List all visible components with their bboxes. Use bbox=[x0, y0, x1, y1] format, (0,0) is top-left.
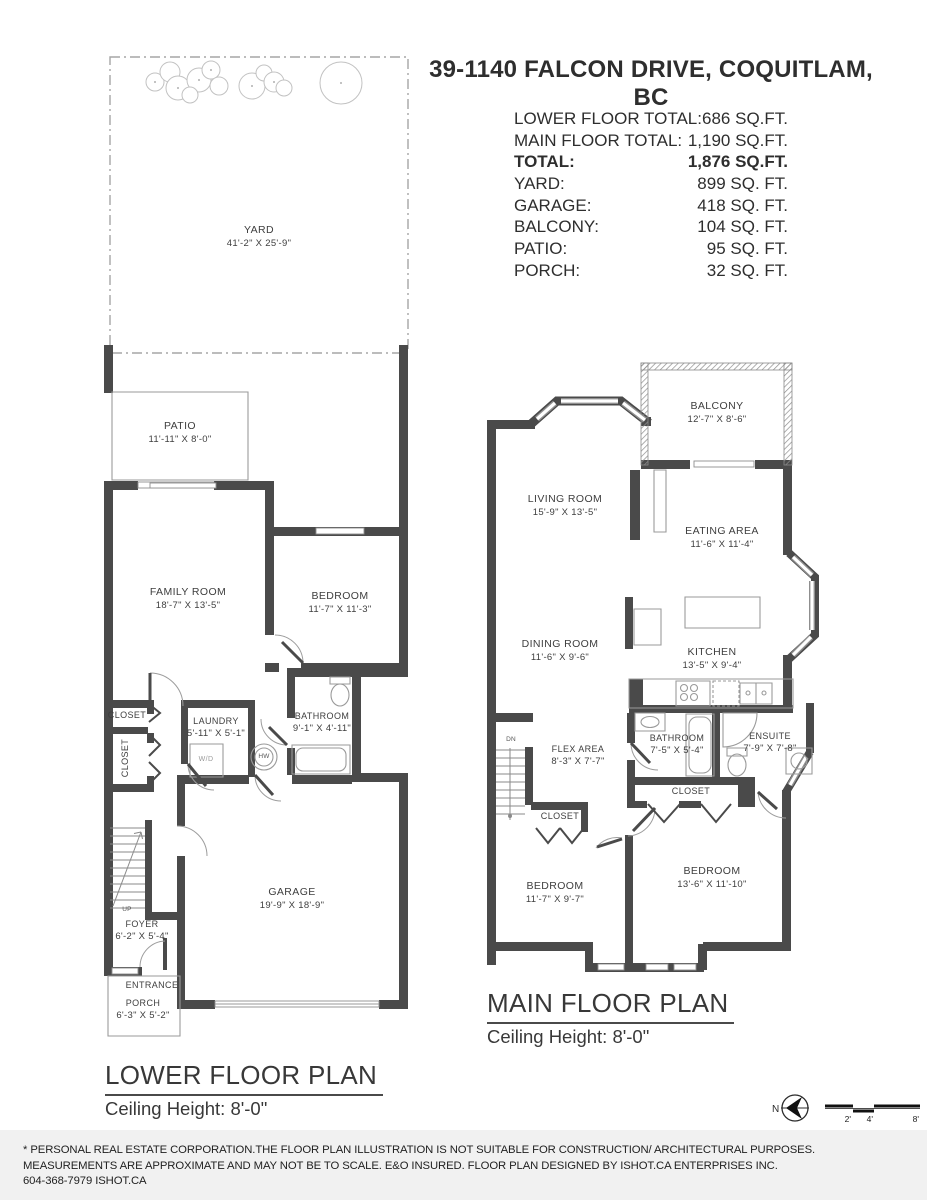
stairs bbox=[110, 748, 525, 908]
room-name: CLOSET bbox=[108, 710, 146, 720]
stairs-up-label: UP bbox=[122, 906, 131, 914]
room-dims: 11'-11" X 8'-0" bbox=[148, 434, 211, 446]
lower-plan-ceiling: Ceiling Height: 8'-0" bbox=[105, 1098, 383, 1120]
room-dims: 6'-2" X 5'-4" bbox=[115, 931, 168, 943]
stat-row: PORCH:32 SQ. FT. bbox=[514, 260, 788, 282]
room-name: CLOSET bbox=[120, 739, 130, 777]
room-name: YARD bbox=[244, 224, 274, 236]
room-label-patio: PATIO11'-11" X 8'-0" bbox=[148, 420, 211, 446]
room-dims: 9'-1" X 4'-11" bbox=[293, 723, 351, 735]
room-name: FAMILY ROOM bbox=[150, 586, 226, 598]
stat-row: PATIO:95 SQ. FT. bbox=[514, 238, 788, 260]
stat-value: 104 SQ. FT. bbox=[697, 217, 788, 237]
room-label-closet-1: CLOSET bbox=[108, 710, 146, 722]
room-name: PATIO bbox=[164, 420, 196, 432]
stat-row: LOWER FLOOR TOTAL:686 SQ.FT. bbox=[514, 108, 788, 130]
footer-line-1: * PERSONAL REAL ESTATE CORPORATION.THE F… bbox=[23, 1143, 815, 1159]
footer-disclaimer: * PERSONAL REAL ESTATE CORPORATION.THE F… bbox=[23, 1143, 815, 1190]
stat-value: 686 SQ.FT. bbox=[702, 109, 788, 129]
room-dims: 6'-3" X 5'-2" bbox=[116, 1010, 169, 1022]
room-label-family-room: FAMILY ROOM18'-7" X 13'-5" bbox=[150, 586, 226, 612]
room-name: ENTRANCE bbox=[126, 980, 179, 990]
room-dims: 11'-7" X 11'-3" bbox=[308, 604, 371, 616]
stat-value: 418 SQ. FT. bbox=[697, 196, 788, 216]
room-dims: 8'-3" X 7'-7" bbox=[551, 756, 604, 768]
stat-label: PATIO: bbox=[514, 239, 567, 259]
room-label-kitchen: KITCHEN13'-5" X 9'-4" bbox=[683, 646, 742, 672]
room-label-bedroom-lower: BEDROOM11'-7" X 11'-3" bbox=[308, 590, 371, 616]
lower-plan-title: LOWER FLOOR PLAN bbox=[105, 1060, 383, 1096]
room-name: LAUNDRY bbox=[193, 716, 239, 726]
room-name: BEDROOM bbox=[526, 880, 583, 892]
lower-plan-title-block: LOWER FLOOR PLAN Ceiling Height: 8'-0" bbox=[105, 1060, 383, 1120]
room-dims: 13'-5" X 9'-4" bbox=[683, 660, 742, 672]
room-dims: 11'-6" X 9'-6" bbox=[522, 652, 599, 664]
north-compass: N bbox=[772, 1095, 809, 1121]
stat-value: 899 SQ. FT. bbox=[697, 174, 788, 194]
room-label-dining-room: DINING ROOM11'-6" X 9'-6" bbox=[522, 638, 599, 664]
bay-window-glass bbox=[537, 401, 812, 785]
scale-tick-2: 2' bbox=[845, 1114, 852, 1124]
room-name: CLOSET bbox=[672, 786, 710, 796]
room-name: BATHROOM bbox=[295, 711, 350, 721]
yard-outline bbox=[110, 57, 408, 353]
room-dims: 11'-7" X 9'-7" bbox=[526, 894, 584, 906]
room-label-bedroom-1: BEDROOM11'-7" X 9'-7" bbox=[526, 880, 584, 906]
room-name: EATING AREA bbox=[685, 525, 759, 537]
room-name: BEDROOM bbox=[311, 590, 368, 602]
room-label-porch: PORCH6'-3" X 5'-2" bbox=[116, 998, 169, 1022]
room-name: LIVING ROOM bbox=[528, 493, 602, 505]
area-stats-table: LOWER FLOOR TOTAL:686 SQ.FT. MAIN FLOOR … bbox=[514, 108, 788, 282]
stat-value: 32 SQ. FT. bbox=[707, 261, 788, 281]
page-title: 39-1140 FALCON DRIVE, COQUITLAM, BC bbox=[410, 56, 892, 112]
room-dims: 41'-2" X 25'-9" bbox=[227, 238, 292, 250]
stat-label: YARD: bbox=[514, 174, 565, 194]
stat-value: 1,876 SQ.FT. bbox=[688, 152, 788, 172]
room-label-yard: YARD41'-2" X 25'-9" bbox=[227, 224, 292, 250]
room-name: ENSUITE bbox=[749, 731, 791, 741]
stat-label: GARAGE: bbox=[514, 196, 591, 216]
footer-line-2: MEASUREMENTS ARE APPROXIMATE AND MAY NOT… bbox=[23, 1159, 815, 1175]
stat-value: 1,190 SQ.FT. bbox=[688, 131, 788, 151]
stairs-dn-label: DN bbox=[506, 736, 516, 744]
room-name: CLOSET bbox=[541, 811, 579, 821]
room-name: DINING ROOM bbox=[522, 638, 599, 650]
room-label-bedroom-2: BEDROOM13'-6" X 11'-10" bbox=[677, 865, 746, 891]
stat-label: PORCH: bbox=[514, 261, 580, 281]
stat-row: GARAGE:418 SQ. FT. bbox=[514, 195, 788, 217]
room-name: GARAGE bbox=[268, 886, 315, 898]
room-label-garage: GARAGE19'-9" X 18'-9" bbox=[260, 886, 325, 912]
room-label-ensuite: ENSUITE7'-9" X 7'-8" bbox=[743, 731, 796, 755]
stat-label: TOTAL: bbox=[514, 152, 575, 172]
stat-label: BALCONY: bbox=[514, 217, 599, 237]
room-dims: 13'-6" X 11'-10" bbox=[677, 879, 746, 891]
room-label-flex-area: FLEX AREA8'-3" X 7'-7" bbox=[551, 744, 604, 768]
room-label-entrance: ENTRANCE bbox=[126, 980, 179, 992]
compass-n-label: N bbox=[772, 1104, 779, 1115]
room-name: KITCHEN bbox=[688, 646, 737, 658]
main-plan-title: MAIN FLOOR PLAN bbox=[487, 988, 734, 1024]
room-label-balcony: BALCONY12'-7" X 8'-6" bbox=[688, 400, 747, 426]
stat-row: BALCONY:104 SQ. FT. bbox=[514, 216, 788, 238]
stat-row-total: TOTAL:1,876 SQ.FT. bbox=[514, 151, 788, 173]
room-name: BATHROOM bbox=[650, 733, 705, 743]
room-label-closet-2: CLOSET bbox=[120, 739, 132, 777]
room-dims: 19'-9" X 18'-9" bbox=[260, 900, 325, 912]
room-label-closet-center: CLOSET bbox=[672, 786, 710, 798]
room-dims: 7'-9" X 7'-8" bbox=[743, 743, 796, 755]
room-dims: 15'-9" X 13'-5" bbox=[528, 507, 602, 519]
room-name: FOYER bbox=[125, 919, 158, 929]
room-label-closet-left: CLOSET bbox=[541, 811, 579, 823]
room-name: FLEX AREA bbox=[552, 744, 605, 754]
room-label-eating-area: EATING AREA11'-6" X 11'-4" bbox=[685, 525, 759, 551]
scale-tick-8: 8' bbox=[913, 1114, 920, 1124]
yard-trees bbox=[146, 61, 362, 104]
hot-water-label: HW bbox=[258, 753, 269, 761]
floorplan-page: N 2' 4' 8' ISH T 39-1140 FALCON DRIVE, C… bbox=[0, 0, 927, 1200]
washer-dryer-label: W/D bbox=[199, 755, 214, 764]
stat-value: 95 SQ. FT. bbox=[707, 239, 788, 259]
stat-row: YARD:899 SQ. FT. bbox=[514, 173, 788, 195]
main-plan-title-block: MAIN FLOOR PLAN Ceiling Height: 8'-0" bbox=[487, 988, 734, 1048]
room-name: PORCH bbox=[126, 998, 161, 1008]
room-label-bathroom-lower: BATHROOM9'-1" X 4'-11" bbox=[293, 711, 351, 735]
footer-line-3: 604-368-7979 ISHOT.CA bbox=[23, 1174, 815, 1190]
room-label-laundry: LAUNDRY5'-11" X 5'-1" bbox=[187, 716, 245, 740]
room-label-living-room: LIVING ROOM15'-9" X 13'-5" bbox=[528, 493, 602, 519]
room-dims: 18'-7" X 13'-5" bbox=[150, 600, 226, 612]
room-name: BEDROOM bbox=[683, 865, 740, 877]
room-dims: 12'-7" X 8'-6" bbox=[688, 414, 747, 426]
stat-label: MAIN FLOOR TOTAL: bbox=[514, 131, 682, 151]
room-dims: 7'-5" X 5'-4" bbox=[650, 745, 705, 757]
room-label-bathroom-main: BATHROOM7'-5" X 5'-4" bbox=[650, 733, 705, 757]
main-plan-ceiling: Ceiling Height: 8'-0" bbox=[487, 1026, 734, 1048]
room-dims: 5'-11" X 5'-1" bbox=[187, 728, 245, 740]
fixtures bbox=[108, 392, 812, 1036]
room-name: BALCONY bbox=[691, 400, 744, 412]
stat-label: LOWER FLOOR TOTAL: bbox=[514, 109, 702, 129]
room-label-foyer: FOYER6'-2" X 5'-4" bbox=[115, 919, 168, 943]
room-dims: 11'-6" X 11'-4" bbox=[685, 539, 759, 551]
stat-row: MAIN FLOOR TOTAL:1,190 SQ.FT. bbox=[514, 130, 788, 152]
scale-tick-4: 4' bbox=[867, 1114, 874, 1124]
scale-bar: 2' 4' 8' bbox=[825, 1106, 920, 1124]
